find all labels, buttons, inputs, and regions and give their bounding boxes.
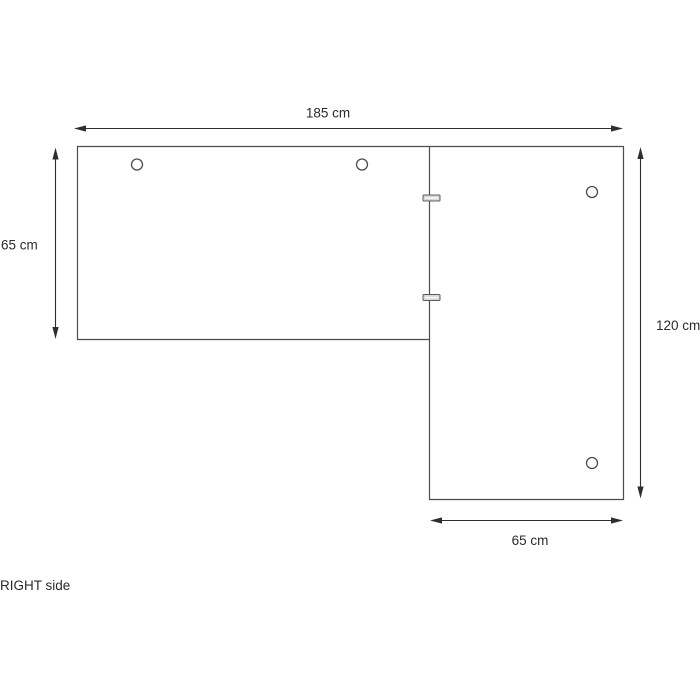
arrowhead-down-icon xyxy=(637,487,643,499)
desk-outline-group xyxy=(78,147,624,500)
cam-connector-1-highlight xyxy=(425,197,438,199)
arrowhead-right-icon xyxy=(611,517,623,523)
dimension-top-width: 185 cm xyxy=(74,106,623,132)
dimension-label-top: 185 cm xyxy=(306,106,350,121)
mounting-hole-3 xyxy=(587,187,598,198)
dimension-left-depth: 65 cm xyxy=(1,148,59,340)
arrowhead-left-icon xyxy=(74,125,86,131)
drawing-side-caption: RIGHT side xyxy=(0,578,70,593)
mounting-hole-1 xyxy=(132,159,143,170)
arrowhead-up-icon xyxy=(637,147,643,159)
arrowhead-up-icon xyxy=(52,148,58,160)
cam-connector-2-highlight xyxy=(425,297,438,299)
dimension-right-length: 120 cm xyxy=(637,147,700,499)
desk-plan-drawing: 185 cm 65 cm 120 cm 65 cm RIGHT side xyxy=(0,0,700,700)
arrowhead-right-icon xyxy=(611,125,623,131)
mounting-holes-group xyxy=(132,159,598,469)
mounting-hole-4 xyxy=(587,458,598,469)
cam-connectors-group xyxy=(423,195,440,301)
mounting-hole-2 xyxy=(357,159,368,170)
dimension-bottom-depth: 65 cm xyxy=(430,517,623,548)
arrowhead-left-icon xyxy=(430,517,442,523)
dimension-label-left: 65 cm xyxy=(1,238,38,253)
desk-top-outline xyxy=(78,147,624,500)
arrowhead-down-icon xyxy=(52,327,58,339)
dimension-label-right: 120 cm xyxy=(656,318,700,333)
assembly-drawing-page: 185 cm 65 cm 120 cm 65 cm RIGHT side xyxy=(0,0,700,700)
dimension-label-bottom: 65 cm xyxy=(512,533,549,548)
